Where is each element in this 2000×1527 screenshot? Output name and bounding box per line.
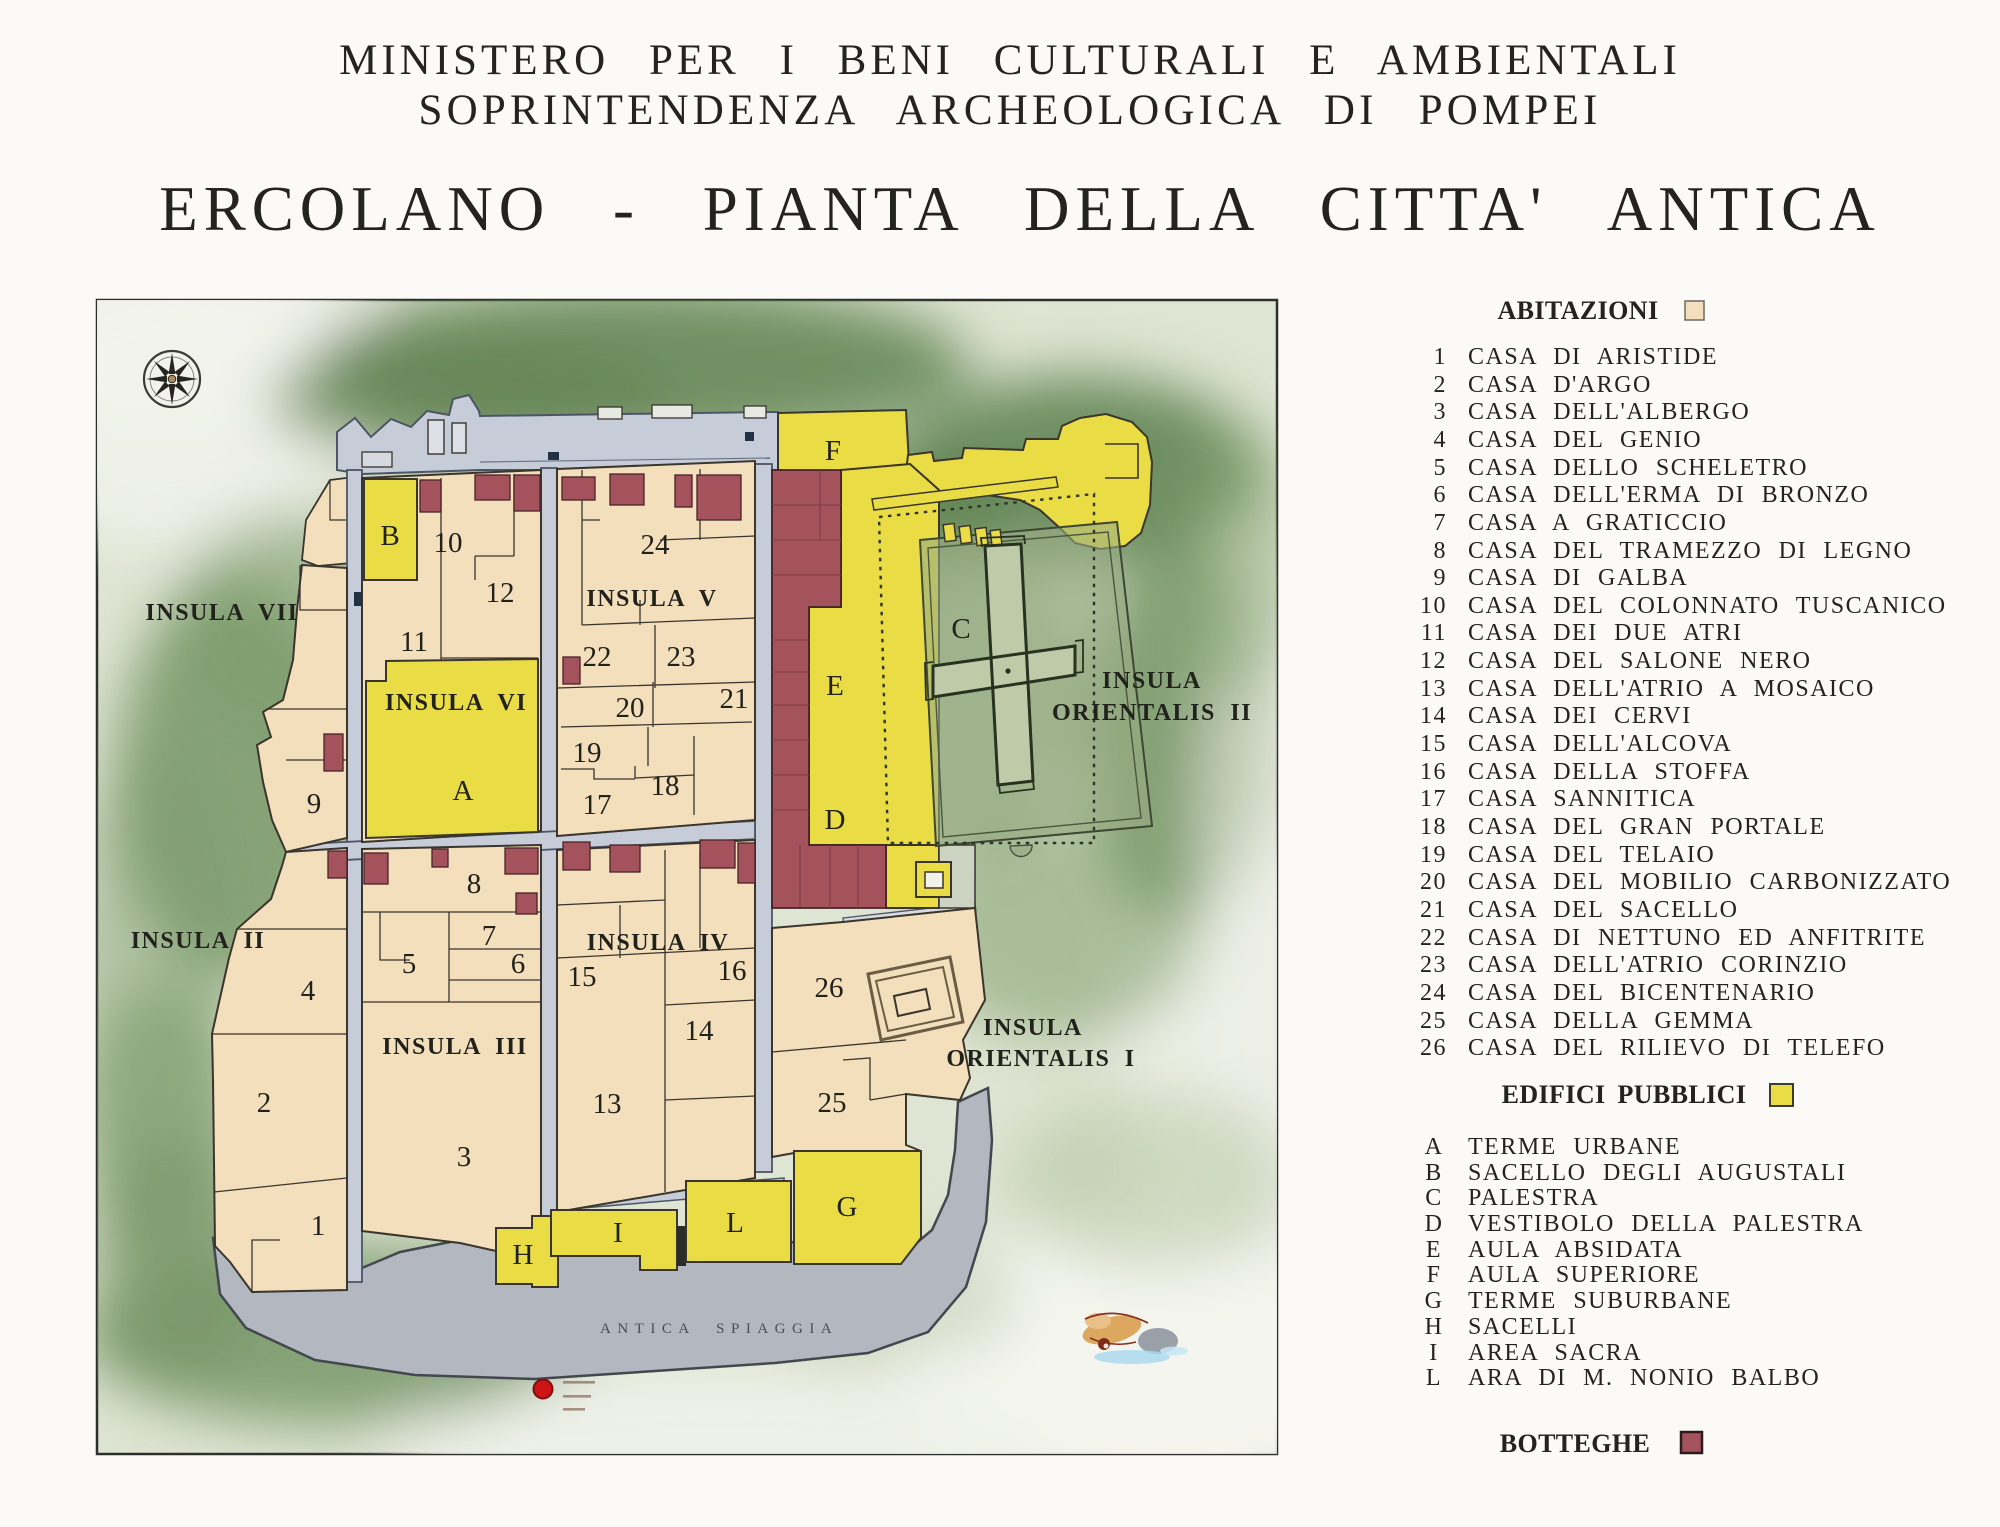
svg-text:TERME SUBURBANE: TERME SUBURBANE [1468,1288,1732,1314]
svg-text:6: 6 [511,948,526,980]
svg-text:25: 25 [1420,1008,1447,1034]
svg-text:19: 19 [573,737,602,769]
svg-text:5: 5 [1434,455,1448,481]
svg-text:CASA DEL SALONE NERO: CASA DEL SALONE NERO [1468,648,1811,674]
svg-text:17: 17 [1420,786,1447,812]
svg-text:AULA ABSIDATA: AULA ABSIDATA [1468,1237,1683,1263]
svg-text:ORIENTALIS II: ORIENTALIS II [1052,700,1252,726]
svg-text:2: 2 [1434,372,1448,398]
svg-text:L: L [726,1207,744,1239]
svg-text:CASA DEL MOBILIO CARBONIZZA: CASA DEL MOBILIO CARBONIZZATO [1468,869,1951,895]
svg-text:8: 8 [1434,538,1448,564]
svg-text:CASA DI ARISTIDE: CASA DI ARISTIDE [1468,344,1718,370]
svg-text:7: 7 [1434,510,1448,536]
svg-text:26: 26 [1420,1035,1447,1061]
svg-text:24: 24 [641,529,671,561]
svg-text:21: 21 [720,683,749,715]
svg-text:D: D [1425,1211,1444,1237]
svg-text:ANTICA SPIAGGIA: ANTICA SPIAGGIA [600,1321,838,1337]
svg-text:G: G [1425,1288,1444,1314]
svg-text:INSULA II: INSULA II [131,928,266,954]
svg-text:INSULA: INSULA [1102,668,1202,694]
svg-text:6: 6 [1434,482,1448,508]
svg-text:CASA DELL'ATRIO CORINZIO: CASA DELL'ATRIO CORINZIO [1468,952,1848,978]
svg-text:CASA DI GALBA: CASA DI GALBA [1468,565,1688,591]
svg-text:10: 10 [434,527,463,559]
svg-text:CASA DEL TRAMEZZO DI LEGNO: CASA DEL TRAMEZZO DI LEGNO [1468,538,1912,564]
svg-text:CASA DEL SACELLO: CASA DEL SACELLO [1468,897,1738,923]
svg-text:ABITAZIONI: ABITAZIONI [1497,296,1658,325]
svg-text:24: 24 [1420,980,1447,1006]
svg-text:23: 23 [1420,952,1447,978]
svg-text:AULA SUPERIORE: AULA SUPERIORE [1468,1262,1700,1288]
svg-text:PALESTRA: PALESTRA [1468,1185,1599,1211]
svg-text:25: 25 [818,1087,847,1119]
svg-text:23: 23 [667,641,696,673]
svg-text:CASA DEL COLONNATO TUSCANIC: CASA DEL COLONNATO TUSCANICO [1468,593,1947,619]
svg-text:7: 7 [482,920,497,952]
svg-text:2: 2 [257,1087,272,1119]
svg-text:19: 19 [1420,842,1447,868]
svg-text:B: B [1425,1160,1443,1186]
svg-text:14: 14 [1420,703,1447,729]
svg-text:11: 11 [400,626,428,658]
svg-text:TERME URBANE: TERME URBANE [1468,1134,1681,1160]
svg-text:14: 14 [685,1015,715,1047]
svg-text:20: 20 [1420,869,1447,895]
svg-text:B: B [380,520,399,552]
svg-text:11: 11 [1421,620,1447,646]
svg-text:INSULA: INSULA [983,1015,1083,1041]
svg-text:20: 20 [616,692,645,724]
svg-text:21: 21 [1420,897,1447,923]
svg-text:CASA DELLO SCHELETRO: CASA DELLO SCHELETRO [1468,455,1808,481]
svg-text:13: 13 [593,1088,622,1120]
svg-text:ARA DI M. NONIO BALBO: ARA DI M. NONIO BALBO [1468,1365,1820,1391]
svg-text:D: D [825,804,846,836]
svg-text:CASA DEL GRAN PORTALE: CASA DEL GRAN PORTALE [1468,814,1826,840]
svg-text:26: 26 [815,972,844,1004]
svg-text:I: I [613,1217,623,1249]
svg-text:22: 22 [1420,925,1447,951]
svg-text:13: 13 [1420,676,1447,702]
svg-text:INSULA V: INSULA V [586,586,717,612]
svg-text:I: I [1429,1340,1439,1366]
svg-text:CASA DEI DUE ATRI: CASA DEI DUE ATRI [1468,620,1743,646]
svg-text:10: 10 [1420,593,1447,619]
svg-text:CASA DEL TELAIO: CASA DEL TELAIO [1468,842,1715,868]
svg-text:9: 9 [1434,565,1448,591]
svg-text:12: 12 [486,577,515,609]
svg-text:A: A [453,775,474,807]
svg-text:4: 4 [1434,427,1448,453]
svg-text:C: C [951,613,970,645]
svg-text:SOPRINTENDENZA ARCHEOLOGICA DI: SOPRINTENDENZA ARCHEOLOGICA DI POMPEI [418,87,1601,134]
svg-text:ERCOLANO - PIANTA DELLA CITTA': ERCOLANO - PIANTA DELLA CITTA' ANTICA [159,174,1880,244]
svg-text:CASA DELL'ALCOVA: CASA DELL'ALCOVA [1468,731,1732,757]
svg-text:INSULA III: INSULA III [382,1034,527,1060]
svg-text:AREA SACRA: AREA SACRA [1468,1340,1642,1366]
svg-text:MINISTERO PER I BENI CULTURALI: MINISTERO PER I BENI CULTURALI E AMBIENT… [339,37,1681,84]
svg-text:15: 15 [568,961,597,993]
svg-text:INSULA IV: INSULA IV [587,930,730,956]
svg-text:ORIENTALIS I: ORIENTALIS I [946,1046,1135,1072]
svg-text:A: A [1425,1134,1444,1160]
svg-text:BOTTEGHE: BOTTEGHE [1500,1429,1651,1458]
svg-text:CASA DEI CERVI: CASA DEI CERVI [1468,703,1692,729]
svg-text:H: H [513,1239,534,1271]
svg-text:CASA DELL'ATRIO A MOSAICO: CASA DELL'ATRIO A MOSAICO [1468,676,1875,702]
svg-text:5: 5 [402,948,417,980]
svg-text:CASA D'ARGO: CASA D'ARGO [1468,372,1652,398]
svg-text:SACELLO DEGLI AUGUSTALI: SACELLO DEGLI AUGUSTALI [1468,1160,1847,1186]
svg-text:8: 8 [467,868,482,900]
svg-text:EDIFICI PUBBLICI: EDIFICI PUBBLICI [1502,1080,1747,1109]
svg-text:INSULA VII: INSULA VII [146,600,299,626]
svg-text:17: 17 [583,789,612,821]
svg-text:G: G [837,1191,858,1223]
svg-text:12: 12 [1420,648,1447,674]
svg-text:CASA DELLA STOFFA: CASA DELLA STOFFA [1468,759,1751,785]
svg-text:CASA DEL RILIEVO DI TELEFO: CASA DEL RILIEVO DI TELEFO [1468,1035,1886,1061]
svg-text:E: E [1426,1237,1442,1263]
svg-text:F: F [825,435,841,467]
svg-text:CASA DELLA GEMMA: CASA DELLA GEMMA [1468,1008,1754,1034]
svg-text:CASA SANNITICA: CASA SANNITICA [1468,786,1696,812]
svg-text:L: L [1426,1365,1442,1391]
svg-text:3: 3 [1434,399,1448,425]
svg-text:C: C [1425,1185,1443,1211]
svg-text:CASA A GRATICCIO: CASA A GRATICCIO [1468,510,1727,536]
svg-text:16: 16 [1420,759,1447,785]
svg-text:18: 18 [1420,814,1447,840]
svg-text:9: 9 [307,788,322,820]
svg-text:VESTIBOLO DELLA PALESTRA: VESTIBOLO DELLA PALESTRA [1468,1211,1864,1237]
svg-text:CASA DI NETTUNO ED ANFITRI: CASA DI NETTUNO ED ANFITRITE [1468,925,1926,951]
svg-text:1: 1 [311,1210,326,1242]
svg-text:15: 15 [1420,731,1447,757]
svg-text:CASA DELL'ERMA DI BRONZO: CASA DELL'ERMA DI BRONZO [1468,482,1869,508]
svg-text:4: 4 [301,975,316,1007]
svg-text:E: E [826,670,844,702]
svg-text:CASA DEL BICENTENARIO: CASA DEL BICENTENARIO [1468,980,1815,1006]
svg-text:22: 22 [583,641,612,673]
svg-text:CASA DEL GENIO: CASA DEL GENIO [1468,427,1702,453]
svg-text:16: 16 [718,955,747,987]
svg-text:INSULA VI: INSULA VI [385,690,527,716]
svg-text:H: H [1425,1314,1444,1340]
svg-text:CASA DELL'ALBERGO: CASA DELL'ALBERGO [1468,399,1750,425]
svg-text:1: 1 [1434,344,1448,370]
svg-text:3: 3 [457,1141,472,1173]
svg-text:18: 18 [651,770,680,802]
svg-text:SACELLI: SACELLI [1468,1314,1577,1340]
svg-text:F: F [1427,1262,1442,1288]
